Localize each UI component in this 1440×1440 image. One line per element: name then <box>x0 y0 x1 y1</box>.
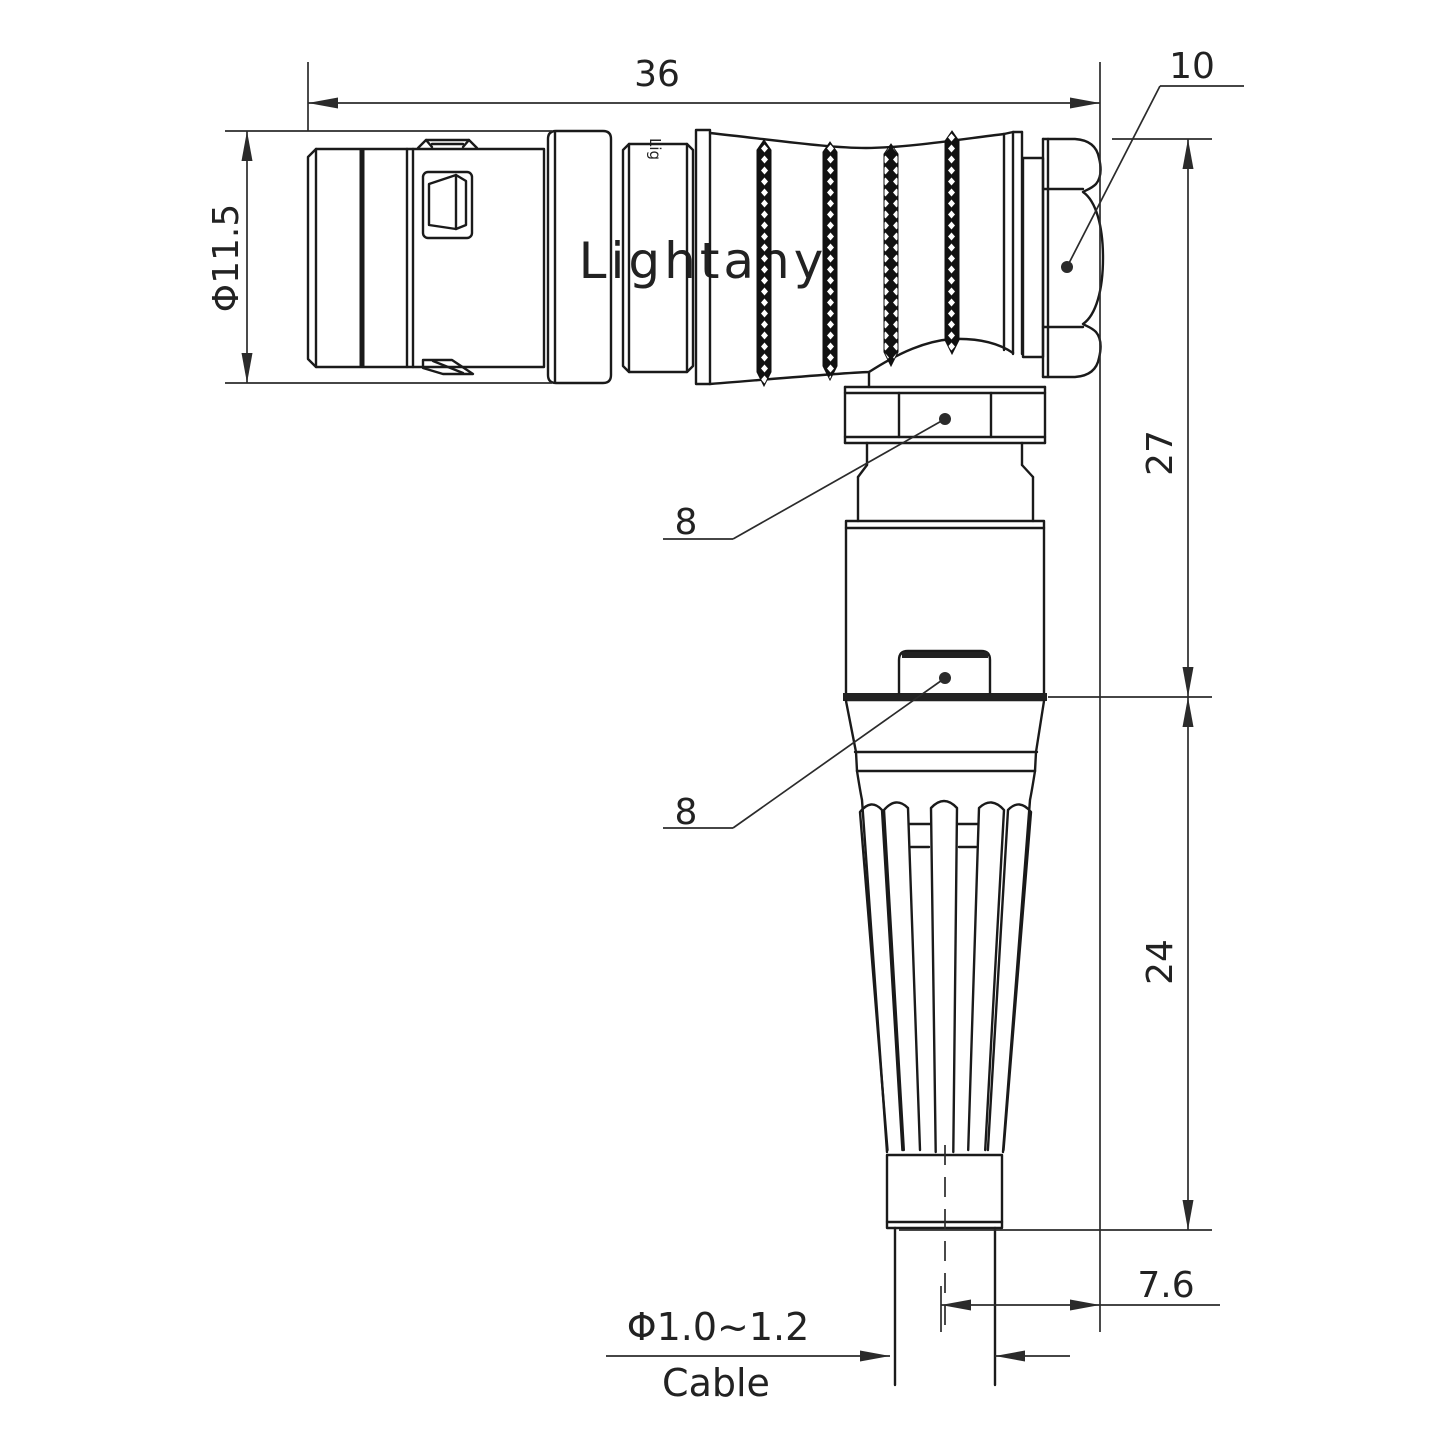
dimension-7-6: 7.6 <box>941 1265 1220 1332</box>
dim-10-label: 10 <box>1169 46 1215 87</box>
leader-dot <box>939 672 951 684</box>
dimension-cable: Φ1.0~1.2 Cable <box>606 1305 1070 1405</box>
dimension-27: 27 <box>1048 139 1212 697</box>
cable <box>895 1145 995 1385</box>
dim-8-lower-label: 8 <box>675 792 698 833</box>
knurl-band <box>823 142 837 380</box>
dimension-8-upper: 8 <box>663 413 951 543</box>
leader-dot <box>1061 261 1073 273</box>
dim-diameter-label: Φ11.5 <box>206 204 247 313</box>
knurl-band <box>945 131 959 354</box>
connector-drawing: Lightany Lig <box>0 0 1440 1440</box>
dim-24-label: 24 <box>1140 939 1181 985</box>
leader-dot <box>939 413 951 425</box>
dim-27-label: 27 <box>1140 430 1181 476</box>
dim-36-label: 36 <box>634 54 680 95</box>
cable-diameter-label: Φ1.0~1.2 <box>627 1305 810 1349</box>
dim-7-6-label: 7.6 <box>1137 1265 1194 1306</box>
body-band <box>843 693 1047 701</box>
coupling-nut-side-view <box>1023 139 1103 377</box>
knurl-band <box>884 144 898 366</box>
connector-lower-body <box>843 443 1047 771</box>
cable-word-label: Cable <box>662 1361 770 1405</box>
dimension-24: 24 <box>899 697 1212 1230</box>
watermark-text: Lightany <box>579 232 828 290</box>
button-top-band <box>902 652 988 658</box>
knurl-band <box>757 140 771 386</box>
drawing-page: Lightany Lig <box>0 0 1440 1440</box>
strain-relief <box>857 771 1035 1228</box>
watermark-small-text: Lig <box>646 138 664 160</box>
dimension-diameter-11-5: Φ11.5 <box>206 131 552 383</box>
dim-8-upper-label: 8 <box>675 502 698 543</box>
dimension-10: 10 <box>1061 46 1244 273</box>
